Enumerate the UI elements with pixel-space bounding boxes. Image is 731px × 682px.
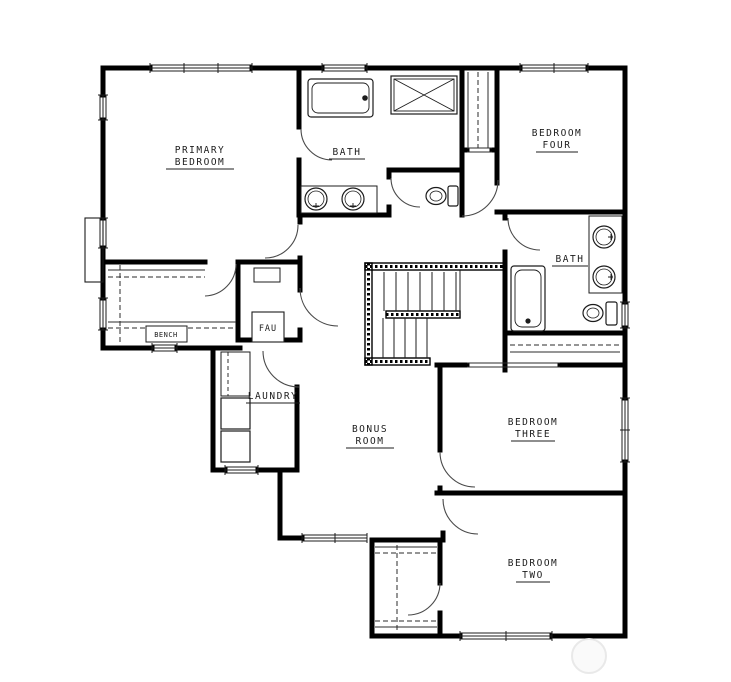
label-primary-bedroom: PRIMARY bbox=[175, 145, 226, 156]
label-bedroom-two-2: TWO bbox=[522, 570, 544, 581]
label-bedroom-three-2: THREE bbox=[515, 429, 551, 440]
door-arc-bedroom-four bbox=[462, 180, 498, 216]
window-left-lower bbox=[98, 298, 108, 330]
fau-vent bbox=[254, 268, 280, 282]
stair-railings bbox=[365, 263, 505, 365]
bedroom-two-closet-shelves bbox=[375, 545, 437, 630]
bathtub-shared bbox=[511, 266, 545, 331]
floor-plan-drawing: PRIMARY BEDROOM BATH BEDROOM FOUR BATH B… bbox=[0, 0, 731, 682]
label-primary-bath: BATH bbox=[333, 147, 362, 158]
door-arc-water-closet bbox=[391, 178, 420, 207]
vanity-shared bbox=[589, 216, 622, 293]
watermark-circle bbox=[572, 639, 606, 673]
label-laundry: LAUNDRY bbox=[248, 391, 299, 402]
window-shared-bath-right bbox=[620, 302, 630, 328]
door-arc-bench-closet bbox=[205, 264, 236, 296]
door-arc-primary-bedroom bbox=[265, 225, 298, 258]
door-arc-shared-bath bbox=[508, 218, 540, 250]
label-bedroom-four: BEDROOM bbox=[532, 128, 583, 139]
vanity-primary bbox=[301, 186, 377, 213]
shower-primary bbox=[391, 76, 457, 114]
window-primary-bedroom-top bbox=[150, 63, 252, 73]
label-fau: FAU bbox=[259, 324, 277, 334]
window-closet-bottom bbox=[152, 343, 177, 353]
window-laundry-bottom bbox=[225, 465, 258, 475]
linen-closet-shelves bbox=[467, 72, 492, 152]
door-arc-primary-bath bbox=[301, 129, 332, 160]
window-bedroom-three-right bbox=[620, 398, 630, 462]
label-bench: BENCH bbox=[154, 331, 178, 339]
door-arc-bedroom-two-closet bbox=[408, 583, 440, 615]
label-bedroom-three: BEDROOM bbox=[508, 417, 559, 428]
door-arc-fau bbox=[300, 288, 338, 326]
stairs bbox=[365, 263, 505, 365]
window-bonus-room-bottom bbox=[302, 533, 367, 543]
label-bedroom-four-2: FOUR bbox=[543, 140, 572, 151]
door-arc-bedroom-two bbox=[443, 499, 478, 534]
window-bath-top bbox=[322, 63, 367, 73]
toilet-primary bbox=[426, 186, 458, 206]
toilet-shared bbox=[583, 302, 617, 325]
label-primary-bedroom-2: BEDROOM bbox=[175, 157, 226, 168]
label-bedroom-two: BEDROOM bbox=[508, 558, 559, 569]
label-bonus-room-2: ROOM bbox=[356, 436, 385, 447]
label-bonus-room: BONUS bbox=[352, 424, 388, 435]
dryer bbox=[221, 431, 250, 462]
window-left-upper bbox=[98, 95, 108, 120]
window-bedroom-two-bottom bbox=[460, 631, 552, 641]
window-bedroom-four-top bbox=[520, 63, 588, 73]
door-arc-bedroom-three bbox=[440, 452, 475, 487]
bathtub-primary bbox=[308, 79, 373, 117]
floor-plan-page: PRIMARY BEDROOM BATH BEDROOM FOUR BATH B… bbox=[0, 0, 731, 682]
laundry-cabinet bbox=[221, 352, 250, 396]
door-arc-laundry bbox=[263, 351, 299, 387]
label-shared-bath: BATH bbox=[556, 254, 585, 265]
washer bbox=[221, 398, 250, 429]
wall-shower-closet bbox=[462, 68, 497, 215]
